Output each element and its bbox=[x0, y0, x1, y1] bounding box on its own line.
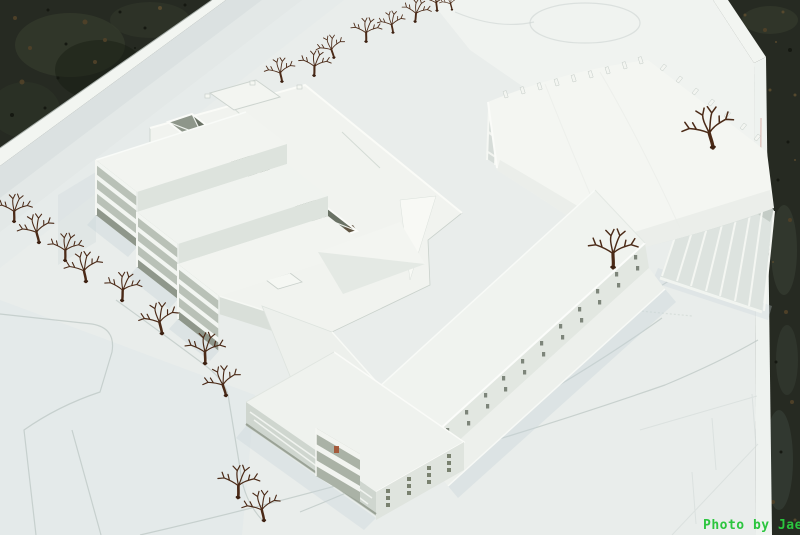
photo-architectural-model: Photo by Jae bbox=[0, 0, 800, 535]
watermark-text: Photo by Jae bbox=[703, 518, 800, 533]
model-photo-canvas: Photo by Jae bbox=[0, 0, 800, 535]
red-accent bbox=[334, 446, 339, 453]
